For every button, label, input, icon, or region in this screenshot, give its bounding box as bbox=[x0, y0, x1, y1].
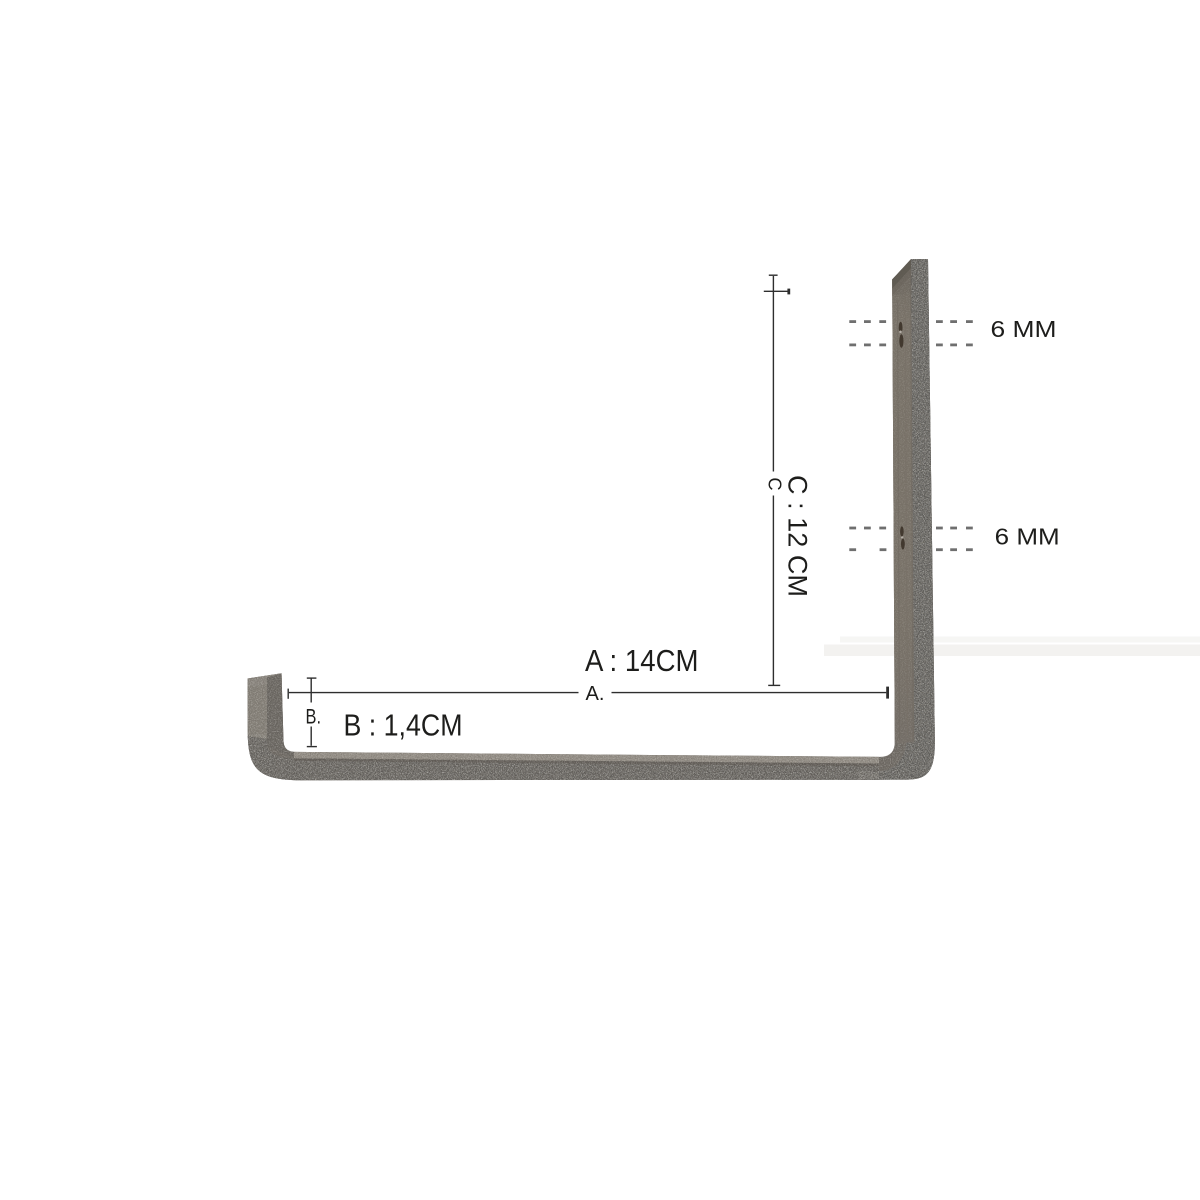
svg-text:B.: B. bbox=[306, 706, 322, 729]
svg-text:C : 12 CM: C : 12 CM bbox=[783, 475, 813, 597]
svg-text:6 MM: 6 MM bbox=[991, 316, 1057, 342]
svg-text:C: C bbox=[765, 478, 785, 491]
svg-text:6 MM: 6 MM bbox=[995, 524, 1060, 550]
svg-text:A : 14CM: A : 14CM bbox=[585, 643, 699, 678]
svg-text:B : 1,4CM: B : 1,4CM bbox=[344, 708, 463, 743]
svg-text:A.: A. bbox=[586, 683, 605, 705]
